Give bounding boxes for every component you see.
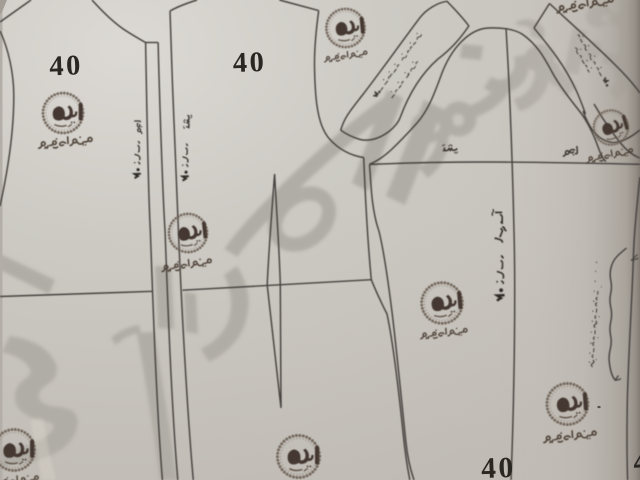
svg-text:40: 40 xyxy=(633,445,640,479)
svg-text:40: 40 xyxy=(232,47,267,79)
svg-text:40: 40 xyxy=(49,50,84,82)
svg-text:40: 40 xyxy=(481,452,517,480)
